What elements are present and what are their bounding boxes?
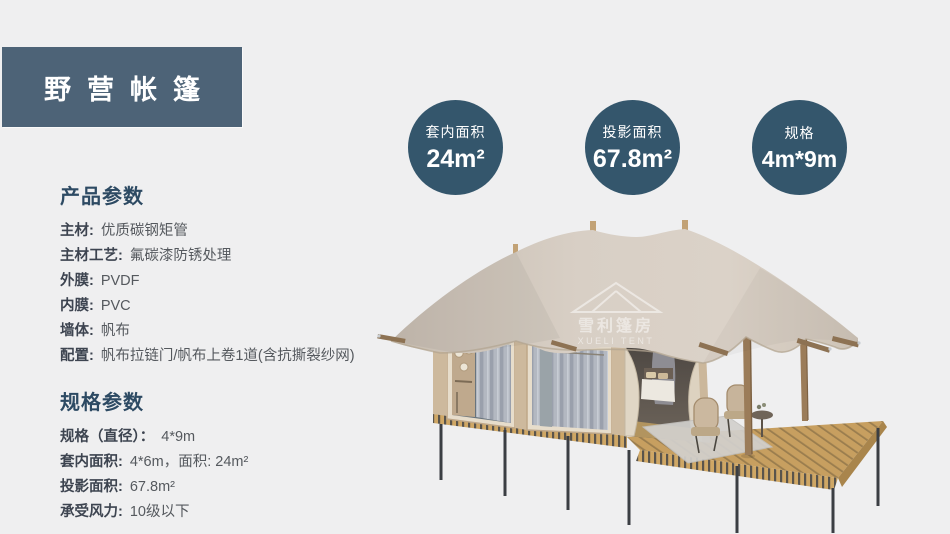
stat-label: 投影面积 [603,122,663,142]
param-value: 67.8m² [130,479,175,495]
param-label: 外膜: [60,273,94,289]
stat-circle-inner-area: 套内面积 24m² [408,100,503,195]
bed [641,368,675,402]
stat-value: 4m*9m [762,146,837,173]
plant [757,405,761,409]
param-label: 规格（直径）： [60,429,154,445]
spec-params-section: 规格参数 规格（直径）：4*9m 套内面积:4*6m，面积: 24m² 投影面积… [60,386,248,525]
tent-illustration: 雪利篷房 XUELI TENT [373,213,950,534]
watermark-en: XUELI TENT [578,336,655,346]
stat-value: 67.8m² [593,145,672,174]
param-value: 优质碳钢矩管 [101,223,188,239]
param-value: 帆布 [101,323,130,339]
section-heading: 产品参数 [60,180,355,209]
stat-circle-size: 规格 4m*9m [752,100,847,195]
product-sheet: 野营帐篷 套内面积 24m² 投影面积 67.8m² 规格 4m*9m 产品参数… [0,0,950,534]
section-heading: 规格参数 [60,386,248,415]
stat-circle-projection-area: 投影面积 67.8m² [585,100,680,195]
param-value: 氟碳漆防锈处理 [130,248,232,264]
param-label: 主材: [60,223,94,239]
shelf [455,381,472,382]
param-value: 帆布拉链门/帆布上卷1道(含抗撕裂纱网) [101,348,355,364]
param-value: 4*9m [161,429,195,445]
watermark-cn: 雪利篷房 [578,316,654,335]
param-label: 配置: [60,348,94,364]
param-row: 主材:优质碳钢矩管 [60,219,355,244]
param-row: 投影面积:67.8m² [60,475,248,500]
param-row: 内膜:PVC [60,294,355,319]
param-value: 4*6m，面积: 24m² [130,454,248,470]
param-label: 投影面积: [60,479,123,495]
param-label: 承受风力: [60,504,123,520]
window-right [527,341,612,434]
param-row: 墙体:帆布 [60,319,355,344]
param-row: 规格（直径）：4*9m [60,425,248,450]
wall-trim [515,340,527,430]
param-label: 墙体: [60,323,94,339]
product-params-section: 产品参数 主材:优质碳钢矩管 主材工艺:氟碳漆防锈处理 外膜:PVDF 内膜:P… [60,180,355,369]
stat-label: 套内面积 [426,122,486,142]
stat-value: 24m² [426,145,484,174]
param-value: PVDF [101,273,140,289]
page-title-box: 野营帐篷 [2,47,242,127]
param-label: 套内面积: [60,454,123,470]
stat-label: 规格 [785,123,815,143]
param-row: 配置:帆布拉链门/帆布上卷1道(含抗撕裂纱网) [60,344,355,369]
param-row: 外膜:PVDF [60,269,355,294]
param-row: 承受风力:10级以下 [60,500,248,525]
tent-product-image: 雪利篷房 XUELI TENT [373,213,950,534]
param-label: 主材工艺: [60,248,123,264]
param-label: 内膜: [60,298,94,314]
param-value: PVC [101,298,131,314]
canopy-roof: 雪利篷房 XUELI TENT [377,220,860,363]
param-row: 套内面积:4*6m，面积: 24m² [60,450,248,475]
wall-trim [612,346,625,436]
param-value: 10级以下 [130,504,190,520]
page-title: 野营帐篷 [44,68,216,107]
param-row: 主材工艺:氟碳漆防锈处理 [60,244,355,269]
